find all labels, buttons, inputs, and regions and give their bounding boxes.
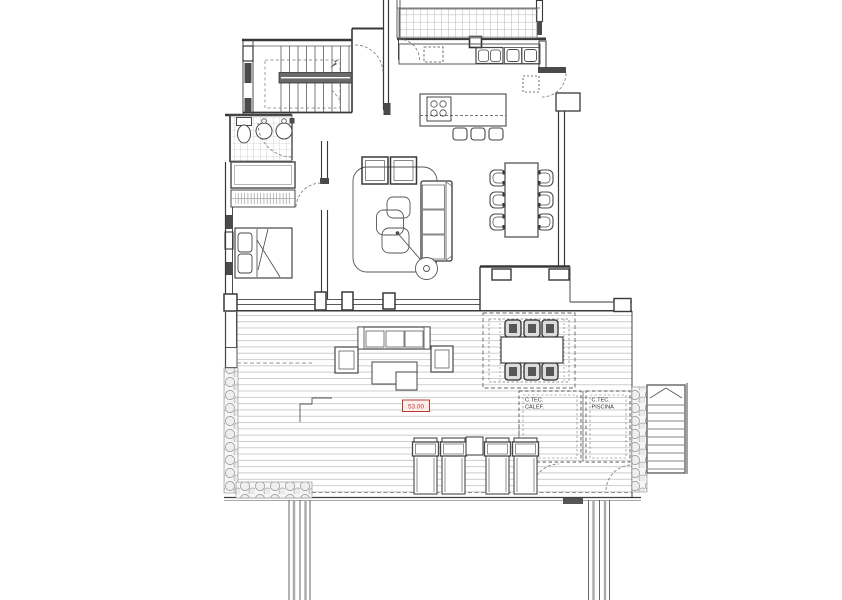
coffee-table-symbol <box>377 210 404 235</box>
toilet-symbol <box>237 118 252 144</box>
lounger-side-table-symbol <box>466 437 483 455</box>
appliance-symbol <box>424 47 443 62</box>
door-arc <box>296 183 321 208</box>
sun-lounger-symbol <box>485 438 511 494</box>
wall-stub <box>563 498 583 504</box>
floor-plan-svg: 53.00 <box>0 0 842 600</box>
kitchen-island <box>420 94 506 126</box>
support-column-right <box>589 500 610 600</box>
bar-stool-symbol <box>471 128 485 140</box>
armchair-symbol <box>391 157 417 184</box>
tech-heating-line2: CALEF. <box>525 405 544 411</box>
tech-room-heating-label: C.TEC. CALEF. <box>525 398 544 411</box>
sun-lounger-symbol <box>441 438 467 494</box>
support-column-left <box>289 500 310 600</box>
skylight-symbol <box>523 76 539 92</box>
pebble-border-right <box>632 387 647 492</box>
armchair-symbol <box>362 157 388 184</box>
staircase-main <box>253 46 352 112</box>
dining-table-symbol <box>505 163 538 237</box>
kitchen-sink-symbol <box>476 48 503 64</box>
stair-walkline <box>265 60 340 108</box>
floor-plan-page: 53.00 <box>0 0 842 600</box>
exterior-staircase <box>632 383 687 492</box>
kitchen <box>399 44 540 140</box>
outdoor-dining-table-symbol <box>501 337 563 363</box>
level-annotation: 53.00 <box>403 400 430 412</box>
sofa-symbol <box>421 181 452 261</box>
level-mark-text: 53.00 <box>408 404 424 411</box>
dining-area <box>490 163 553 237</box>
dining-chairs-left <box>490 170 506 230</box>
bar-stool-symbol <box>453 128 467 140</box>
upper-terrace <box>397 8 540 38</box>
pebble-border-bottom <box>236 482 312 498</box>
outdoor-side-table-symbol <box>396 372 417 390</box>
dining-chairs-right <box>537 170 553 230</box>
tech-pool-line1: C.TEC. <box>592 398 611 404</box>
coffee-table-symbol <box>387 197 410 218</box>
sun-lounger-symbol <box>413 438 439 494</box>
bathroom <box>230 115 292 161</box>
pebble-border-left <box>224 368 238 493</box>
tech-heating-line1: C.TEC. <box>525 398 544 404</box>
sun-lounger-symbol <box>513 438 539 494</box>
living-room <box>353 157 452 280</box>
supports <box>289 498 610 600</box>
coffee-table-symbol <box>382 228 409 253</box>
bar-stool-symbol <box>489 128 503 140</box>
double-bed-symbol <box>235 228 292 278</box>
tech-pool-line2: PISCINA <box>592 405 615 411</box>
wardrobe <box>231 162 295 207</box>
